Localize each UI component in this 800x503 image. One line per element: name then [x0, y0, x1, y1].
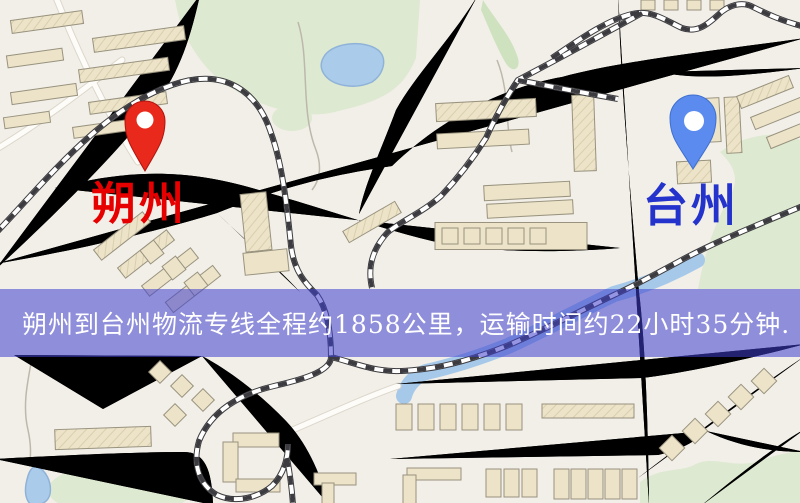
map-screenshot: 朔州 台州 朔州到台州物流专线全程约1858公里，运输时间约22小时35分钟.: [0, 0, 800, 503]
destination-city-label: 台州: [643, 179, 739, 232]
destination-pin-hole: [684, 111, 704, 131]
route-info-text: 朔州到台州物流专线全程约1858公里，运输时间约22小时35分钟.: [0, 305, 790, 341]
route-info-banner: 朔州到台州物流专线全程约1858公里，运输时间约22小时35分钟.: [0, 289, 800, 357]
origin-city-label: 朔州: [91, 177, 187, 230]
origin-pin-hole: [137, 112, 154, 129]
map-canvas: 朔州 台州: [0, 0, 800, 503]
lake: [321, 44, 384, 86]
